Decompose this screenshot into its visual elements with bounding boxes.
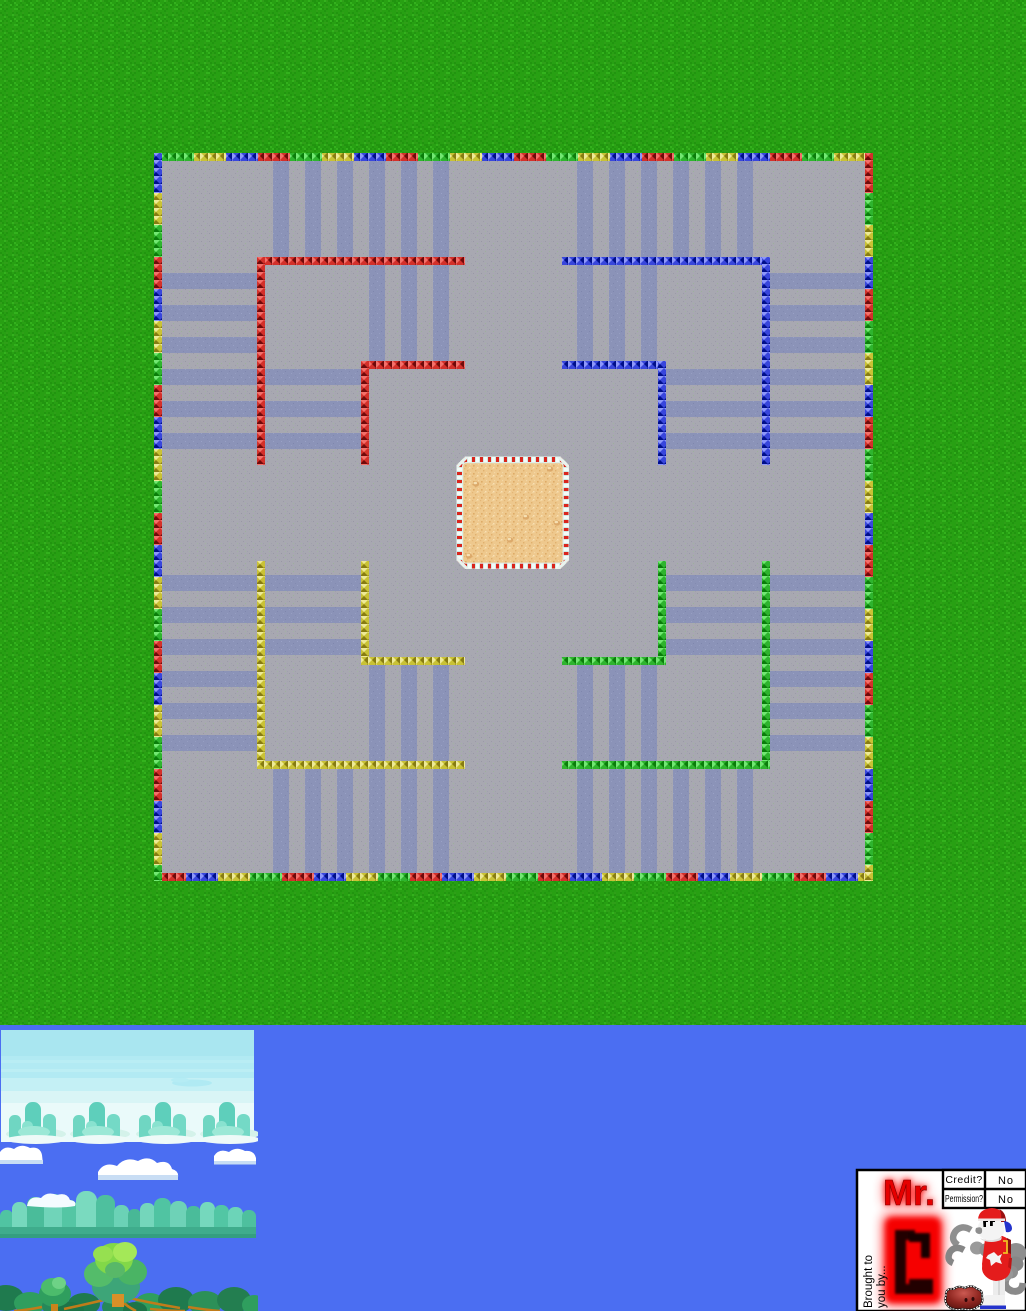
svg-text:you by...: you by... <box>876 1265 888 1308</box>
svg-text:Credit?: Credit? <box>945 1174 982 1186</box>
svg-text:No: No <box>998 1194 1014 1206</box>
svg-text:No: No <box>998 1175 1014 1187</box>
svg-text:Brought to: Brought to <box>863 1255 875 1308</box>
svg-text:Mr.: Mr. <box>883 1172 935 1213</box>
svg-text:Permission?: Permission? <box>945 1194 983 1205</box>
